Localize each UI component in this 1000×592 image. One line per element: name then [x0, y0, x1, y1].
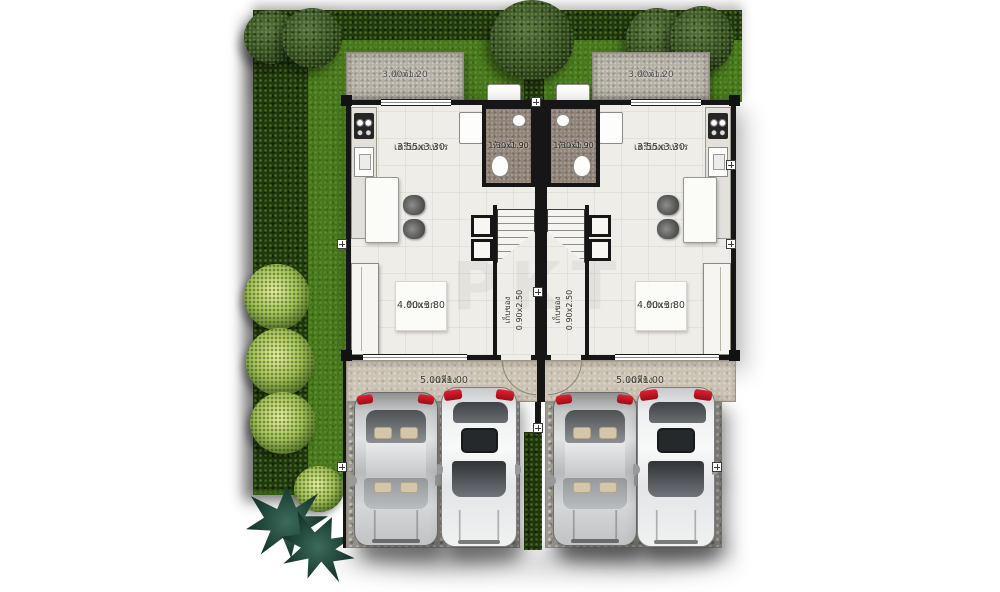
column-marker [729, 95, 740, 106]
sofa-right [703, 263, 731, 355]
bathroom-right: ห้องน้ำ 2 1.30x1.90 [547, 105, 600, 187]
wall-joint-marker [531, 97, 541, 107]
chair [657, 219, 679, 239]
chair [403, 195, 425, 215]
windshield [648, 461, 704, 497]
car-hood [562, 510, 628, 539]
wall-joint-marker [337, 239, 347, 249]
closet [471, 215, 493, 237]
wall-joint-marker [533, 287, 543, 297]
sunroof [461, 428, 498, 453]
laundry-size: 3.00x1.20 [382, 70, 427, 82]
car-grille [654, 540, 698, 544]
laundry-patio-right: ซักล้าง 3.00x1.20 [592, 52, 710, 100]
chair [657, 195, 679, 215]
stove-left [354, 113, 374, 139]
bathroom-size: 1.30x1.90 [488, 141, 528, 151]
wall-joint-marker [726, 160, 736, 170]
car-roof [565, 443, 626, 478]
car-suv-right [637, 387, 715, 547]
side-mirror [437, 464, 444, 475]
tree [282, 8, 342, 68]
car-grille [458, 540, 501, 544]
dining-table-left [365, 177, 399, 243]
tailgate-window [649, 402, 705, 423]
rear-window [565, 410, 626, 443]
sunroof [657, 428, 695, 453]
wall-joint-marker [726, 239, 736, 249]
kitchen-sink-right [708, 147, 728, 177]
column-marker [341, 350, 352, 361]
shrub [250, 392, 316, 454]
chair [403, 219, 425, 239]
living-label-left: รับแขก 4.00x3.80 [395, 281, 447, 331]
toilet-icon [573, 155, 591, 177]
tailgate-window [453, 402, 508, 423]
wall-joint-marker [337, 462, 347, 472]
car-hood [646, 510, 707, 540]
car-suv-left [441, 387, 517, 547]
car-sedan-left [354, 392, 438, 546]
taillight-icon [617, 394, 634, 405]
bathroom-size: 1.30x1.90 [553, 141, 593, 151]
car-sedan-right [553, 392, 637, 546]
closet [589, 215, 611, 237]
door-swing-arc [548, 361, 582, 395]
car-hood [363, 510, 429, 539]
car-hood [449, 510, 508, 540]
wall-joint-marker [533, 423, 543, 433]
window [631, 99, 701, 106]
column-marker [729, 350, 740, 361]
hedge-center-driveway [524, 432, 542, 550]
windshield [364, 478, 428, 508]
basin-icon [556, 114, 570, 127]
tree [490, 0, 574, 80]
porch-divider-wall [537, 360, 545, 402]
kitchen-label-left: เตรียมอาหาร 3.55x3.30 [373, 131, 469, 165]
toilet-icon [491, 155, 509, 177]
taillight-icon [693, 389, 712, 402]
laundry-patio-left: ซักล้าง 3.00x1.20 [346, 52, 464, 100]
side-mirror [349, 475, 356, 486]
windshield [452, 461, 507, 497]
car-roof [366, 443, 427, 478]
car-grille [571, 539, 619, 543]
kitchen-label-right: เตรียมอาหาร 3.55x3.30 [613, 131, 709, 165]
shrub [244, 264, 310, 330]
taillight-icon [640, 389, 659, 402]
stove-right [708, 113, 728, 139]
taillight-icon [556, 394, 573, 405]
watermark: PKT [452, 248, 652, 348]
taillight-icon [357, 394, 374, 405]
taillight-icon [418, 394, 435, 405]
side-mirror [633, 464, 640, 475]
sofa-left [351, 263, 379, 355]
wall-joint-marker [712, 462, 722, 472]
kitchen-sink-left [354, 147, 374, 177]
taillight-icon [444, 389, 463, 402]
basin-icon [512, 114, 526, 127]
rear-window [366, 410, 427, 443]
window [381, 99, 451, 106]
shrub [246, 328, 314, 396]
taillight-icon [495, 389, 514, 402]
ground-shadow [330, 550, 740, 576]
floor-plan-canvas: ซักล้าง 3.00x1.20 ซักล้าง 3.00x1.20 เตรี… [0, 0, 1000, 592]
bathroom-left: ห้องน้ำ 2 1.30x1.90 [482, 105, 535, 187]
side-mirror [515, 464, 522, 475]
car-grille [372, 539, 420, 543]
windshield [563, 478, 627, 508]
side-mirror [548, 475, 555, 486]
dining-table-right [683, 177, 717, 243]
laundry-size: 3.00x1.20 [628, 70, 673, 82]
column-marker [341, 95, 352, 106]
